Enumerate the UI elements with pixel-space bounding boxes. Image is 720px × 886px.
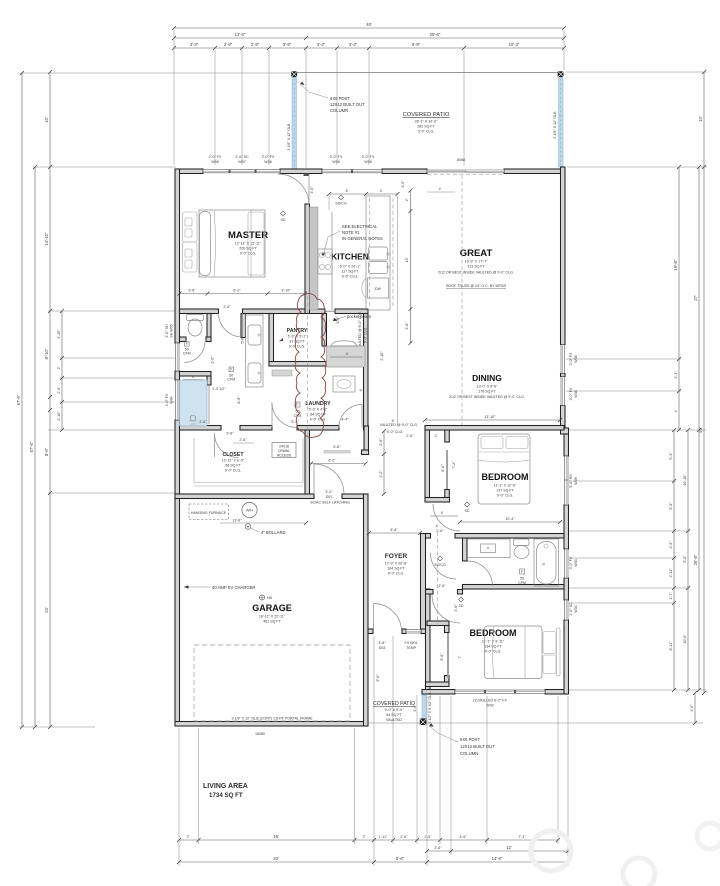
svg-text:2'-11": 2'-11" <box>669 568 673 578</box>
svg-text:3'-8": 3'-8" <box>378 641 386 645</box>
svg-text:3 1/8" X 12" GLB: 3 1/8" X 12" GLB <box>553 111 557 139</box>
svg-text:50: 50 <box>520 577 524 581</box>
svg-text:9'-6": 9'-6" <box>376 674 380 682</box>
svg-text:13'-6": 13'-6" <box>232 519 242 523</box>
svg-text:SH W05: SH W05 <box>170 324 174 337</box>
svg-text:VAULTED @ 9'-0" CLG.: VAULTED @ 9'-0" CLG. <box>380 423 418 427</box>
svg-text:D01: D01 <box>326 495 333 499</box>
svg-text:VAULTED @ 9'-0" CLG.: VAULTED @ 9'-0" CLG. <box>358 311 362 349</box>
svg-text:2': 2' <box>57 366 61 369</box>
svg-text:DINING: DINING <box>472 373 502 383</box>
svg-text:COLUMN: COLUMN <box>330 108 348 113</box>
svg-text:9'-0" CLG.: 9'-0" CLG. <box>485 650 502 654</box>
svg-text:7'-2": 7'-2" <box>452 461 456 469</box>
svg-text:2'-9": 2'-9" <box>224 42 233 47</box>
svg-text:3'-6": 3'-6" <box>336 316 340 324</box>
svg-text:4': 4' <box>439 187 442 191</box>
svg-text:GARAGE: GARAGE <box>252 603 292 613</box>
svg-text:GREAT: GREAT <box>460 248 493 259</box>
svg-text:W02: W02 <box>486 704 493 708</box>
svg-text:2'-0" SC: 2'-0" SC <box>569 602 573 616</box>
svg-text:5'-6": 5'-6" <box>333 445 341 449</box>
svg-text:10'-6": 10'-6" <box>683 634 687 644</box>
svg-text:VAULTED: VAULTED <box>386 718 402 722</box>
svg-text:3'-6": 3'-6" <box>690 704 694 712</box>
svg-text:10'-4": 10'-4" <box>505 517 515 521</box>
svg-text:W08: W08 <box>574 390 578 397</box>
svg-text:4': 4' <box>441 511 444 515</box>
svg-text:57'-6": 57'-6" <box>29 441 34 452</box>
svg-text:9'-0" CLG.: 9'-0" CLG. <box>225 469 242 473</box>
svg-text:6': 6' <box>346 189 349 193</box>
svg-text:COLUMN: COLUMN <box>460 751 478 756</box>
svg-text:2'-6": 2'-6" <box>239 438 247 442</box>
svg-text:176 SQ FT: 176 SQ FT <box>478 390 496 394</box>
svg-text:2'-6": 2'-6" <box>199 420 207 424</box>
svg-text:5'-0" X 9'-0": 5'-0" X 9'-0" <box>385 708 404 712</box>
svg-text:6'-6": 6'-6" <box>441 464 445 472</box>
svg-text:3'-0": 3'-0" <box>401 180 405 188</box>
svg-text:9'-0" CLG.: 9'-0" CLG. <box>387 430 404 434</box>
svg-text:6'-0" X 20'-1": 6'-0" X 20'-1" <box>340 265 361 269</box>
svg-text:FX W01: FX W01 <box>405 641 418 645</box>
svg-text:2': 2' <box>187 835 190 839</box>
svg-text:2'-6": 2'-6" <box>211 356 215 364</box>
svg-text:2'-0" SC: 2'-0" SC <box>235 155 249 159</box>
svg-text:2'-6": 2'-6" <box>406 434 414 438</box>
svg-text:54 SQ FT: 54 SQ FT <box>386 713 402 717</box>
svg-text:5'-3" X 4'-6": 5'-3" X 4'-6" <box>309 408 328 412</box>
svg-text:4'-9": 4'-9" <box>459 835 467 839</box>
svg-text:1734 SQ FT: 1734 SQ FT <box>209 792 243 799</box>
svg-text:4'-10": 4'-10" <box>57 329 61 339</box>
svg-text:14'-6": 14'-6" <box>492 856 503 861</box>
svg-text:CFM: CFM <box>227 378 235 382</box>
svg-text:LAUNDRY: LAUNDRY <box>305 401 331 407</box>
svg-text:10': 10' <box>405 257 409 262</box>
svg-text:3': 3' <box>380 189 383 193</box>
svg-text:6': 6' <box>392 419 395 423</box>
svg-text:40 AMP EV CHARGER: 40 AMP EV CHARGER <box>212 585 255 590</box>
svg-text:16': 16' <box>273 834 279 839</box>
svg-text:4'-4": 4'-4" <box>341 418 349 422</box>
svg-text:W03: W03 <box>574 605 578 612</box>
svg-text:24': 24' <box>44 607 49 613</box>
svg-text:2': 2' <box>435 434 438 438</box>
svg-text:5'-6": 5'-6" <box>396 856 405 861</box>
svg-text:3'-0" FX: 3'-0" FX <box>330 155 343 159</box>
svg-text:HANGING FURNACE: HANGING FURNACE <box>191 511 227 515</box>
svg-text:3'-8": 3'-8" <box>405 322 409 330</box>
svg-text:W04: W04 <box>170 396 174 403</box>
svg-text:9'-0" CLG.: 9'-0" CLG. <box>342 275 359 279</box>
svg-text:9'-0" CLG.: 9'-0" CLG. <box>289 345 306 349</box>
svg-text:5'-3" X 5'-1": 5'-3" X 5'-1" <box>288 335 307 339</box>
svg-text:COVERED PATIO: COVERED PATIO <box>403 112 450 118</box>
svg-text:SO/CO: SO/CO <box>434 563 446 567</box>
svg-text:ACCESS: ACCESS <box>277 454 292 458</box>
svg-text:2'-10": 2'-10" <box>57 411 61 421</box>
svg-text:16080: 16080 <box>255 732 265 736</box>
svg-text:6X6 POST: 6X6 POST <box>330 96 350 101</box>
svg-text:3'-6": 3'-6" <box>188 289 196 293</box>
svg-text:9'-0" CLG.: 9'-0" CLG. <box>310 418 327 422</box>
svg-text:200 SQ FT: 200 SQ FT <box>239 247 257 251</box>
svg-text:10': 10' <box>44 117 49 123</box>
svg-text:COVERED PATIO: COVERED PATIO <box>373 701 415 707</box>
svg-text:3'-6": 3'-6" <box>454 604 458 612</box>
svg-text:58 SQ FT: 58 SQ FT <box>225 464 241 468</box>
svg-text:134 SQ FT: 134 SQ FT <box>484 645 502 649</box>
svg-text:2'-5": 2'-5" <box>424 835 432 839</box>
svg-text:CRAWL: CRAWL <box>278 449 290 453</box>
svg-text:20': 20' <box>273 856 279 861</box>
svg-text:18'-11" X 22'-11": 18'-11" X 22'-11" <box>259 615 286 619</box>
svg-text:2'-0" FX: 2'-0" FX <box>209 155 222 159</box>
svg-text:2'-9 1/2": 2'-9 1/2" <box>212 387 226 391</box>
svg-text:137 SQ FT: 137 SQ FT <box>496 489 514 493</box>
svg-text:3'-0": 3'-0" <box>310 186 314 194</box>
svg-text:3'-3": 3'-3" <box>349 42 358 47</box>
svg-text:8068: 8068 <box>457 158 465 162</box>
svg-text:67'-6": 67'-6" <box>16 394 21 405</box>
svg-text:8'-6": 8'-6" <box>44 447 49 456</box>
svg-text:9'-0" CLG.: 9'-0" CLG. <box>418 130 435 134</box>
svg-text:W06: W06 <box>211 160 218 164</box>
svg-text:5'-3": 5'-3" <box>291 420 299 424</box>
svg-text:2': 2' <box>363 835 366 839</box>
svg-text:SD/CO: SD/CO <box>335 202 347 206</box>
svg-text:2'-9": 2'-9" <box>669 541 673 549</box>
svg-text:5'-6": 5'-6" <box>241 336 245 344</box>
svg-text:3'-6": 3'-6" <box>413 704 417 712</box>
svg-text:27': 27' <box>693 295 698 301</box>
svg-text:11'-1" X 9'-11": 11'-1" X 9'-11" <box>482 640 505 644</box>
svg-text:313 SQ FT: 313 SQ FT <box>467 265 485 269</box>
svg-text:SEE ELECTRICAL: SEE ELECTRICAL <box>342 224 378 229</box>
svg-text:4'-2": 4'-2" <box>379 470 383 478</box>
svg-text:DW: DW <box>375 287 382 291</box>
svg-text:3'-0" FX: 3'-0" FX <box>362 155 375 159</box>
svg-text:40': 40' <box>366 22 372 27</box>
svg-text:SD: SD <box>459 604 464 608</box>
svg-text:8'-11": 8'-11" <box>669 641 673 651</box>
svg-text:1'-11": 1'-11" <box>379 835 389 839</box>
svg-text:3'-0" SH: 3'-0" SH <box>165 324 169 338</box>
svg-text:3'-9": 3'-9" <box>283 42 292 47</box>
svg-text:2/12 OR BEST INSIDE VAULTED @: 2/12 OR BEST INSIDE VAULTED @ 9'-0" CLG. <box>438 271 514 275</box>
svg-text:117 SQ FT: 117 SQ FT <box>341 270 359 274</box>
svg-text:2'-6": 2'-6" <box>223 305 231 309</box>
svg-text:W09: W09 <box>574 477 578 484</box>
svg-text:SD: SD <box>281 218 286 222</box>
svg-text:2'-6": 2'-6" <box>434 846 442 850</box>
svg-text:CFM: CFM <box>518 581 526 585</box>
svg-text:W/H: W/H <box>246 509 253 513</box>
svg-text:3'-10": 3'-10" <box>281 289 291 293</box>
svg-text:5'-0" RS: 5'-0" RS <box>569 474 573 488</box>
svg-text:5'-8": 5'-8" <box>683 555 687 563</box>
svg-text:5'-3": 5'-3" <box>669 452 673 460</box>
svg-text:4" BOLLARD: 4" BOLLARD <box>261 530 286 535</box>
svg-text:7': 7' <box>458 655 462 658</box>
svg-text:6'-2": 6'-2" <box>328 459 336 463</box>
svg-text:12'-11" X 6'-5": 12'-11" X 6'-5" <box>222 459 245 463</box>
svg-text:26'-6": 26'-6" <box>430 32 441 37</box>
svg-text:2'-10": 2'-10" <box>380 351 384 361</box>
svg-text:12X12 BUILT OUT: 12X12 BUILT OUT <box>460 744 495 749</box>
svg-text:12X12 BUILT OUT: 12X12 BUILT OUT <box>330 102 365 107</box>
svg-text:13'-0" X 8'-6": 13'-0" X 8'-6" <box>477 385 498 389</box>
svg-text:CLOSET: CLOSET <box>222 452 244 458</box>
svg-text:13'-6": 13'-6" <box>235 32 246 37</box>
svg-text:NOTE #1: NOTE #1 <box>342 230 360 235</box>
svg-text:11'-1" X 12'-6": 11'-1" X 12'-6" <box>494 484 517 488</box>
svg-text:SD: SD <box>465 509 470 513</box>
svg-text:8'-10": 8'-10" <box>44 348 49 359</box>
svg-text:2': 2' <box>405 198 409 201</box>
svg-text:10'-3": 10'-3" <box>509 42 520 47</box>
svg-text:26'-8": 26'-8" <box>693 554 698 565</box>
svg-text:2'-6": 2'-6" <box>226 432 234 436</box>
svg-text:ROOF TRUSS @ 24" O.C. BY MFGR: ROOF TRUSS @ 24" O.C. BY MFGR <box>446 284 507 288</box>
svg-text:4': 4' <box>674 409 678 412</box>
svg-text:3 1/8" X 12" GLB: 3 1/8" X 12" GLB <box>287 123 291 151</box>
svg-text:W08: W08 <box>364 160 371 164</box>
svg-text:5'-3": 5'-3" <box>669 502 673 510</box>
svg-text:2'-6": 2'-6" <box>436 529 444 533</box>
svg-text:19'-8": 19'-8" <box>673 259 678 270</box>
svg-text:12'-11" X 13'-11": 12'-11" X 13'-11" <box>235 242 262 246</box>
svg-text:5'-6": 5'-6" <box>440 653 444 661</box>
svg-text:8'-6": 8'-6" <box>237 396 241 404</box>
svg-text:3'-3": 3'-3" <box>674 371 678 379</box>
svg-text:3 1/8" X 12" GLB (CONT) CS-PF: 3 1/8" X 12" GLB (CONT) CS-PF PORTAL FRA… <box>232 717 314 721</box>
svg-text:7'-3": 7'-3" <box>518 835 526 839</box>
svg-text:W07: W07 <box>238 160 245 164</box>
svg-text:31 SQ FT: 31 SQ FT <box>289 340 305 344</box>
svg-text:6X6 POST: 6X6 POST <box>460 737 480 742</box>
svg-text:12': 12' <box>506 845 512 850</box>
svg-text:4': 4' <box>436 524 439 528</box>
svg-text:28'-1" X 10'-0": 28'-1" X 10'-0" <box>415 120 438 124</box>
svg-text:461 SQ FT: 461 SQ FT <box>263 620 281 624</box>
svg-text:4'-3": 4'-3" <box>190 42 199 47</box>
svg-text:W03: W03 <box>574 559 578 566</box>
svg-text:9'-0" CLG.: 9'-0" CLG. <box>497 494 514 498</box>
svg-text:24X18: 24X18 <box>279 445 289 449</box>
svg-text:3'-0": 3'-0" <box>325 490 333 494</box>
svg-text:282 SQ FT: 282 SQ FT <box>417 125 435 129</box>
svg-text:6': 6' <box>359 388 363 391</box>
svg-text:LIVING AREA: LIVING AREA <box>203 783 248 790</box>
svg-text:2'-0" FX: 2'-0" FX <box>262 155 275 159</box>
svg-text:W06: W06 <box>264 160 271 164</box>
svg-text:3'-3": 3'-3" <box>317 42 326 47</box>
svg-text:14'-10": 14'-10" <box>44 232 49 246</box>
svg-text:2'-6": 2'-6" <box>400 835 408 839</box>
svg-text:10': 10' <box>698 116 703 122</box>
svg-text:10'-10": 10'-10" <box>683 474 687 486</box>
svg-text:CFM: CFM <box>183 352 191 356</box>
svg-text:16'-9" X 17'-7": 16'-9" X 17'-7" <box>465 260 488 264</box>
svg-text:IN GENERAL NOTES: IN GENERAL NOTES <box>342 236 383 241</box>
svg-text:2'-6": 2'-6" <box>57 386 61 394</box>
svg-text:SC/AC SELF LATCHING: SC/AC SELF LATCHING <box>310 501 350 505</box>
svg-text:2'-6": 2'-6" <box>438 584 446 588</box>
svg-text:4'-0" FX: 4'-0" FX <box>165 393 169 406</box>
svg-text:3': 3' <box>192 375 195 379</box>
svg-text:3'-0" FX: 3'-0" FX <box>569 352 573 365</box>
svg-text:TEMP: TEMP <box>406 646 417 650</box>
svg-text:D03: D03 <box>379 646 386 650</box>
svg-text:2/12 OR BEST INSIDE VAULTED @: 2/12 OR BEST INSIDE VAULTED @ 9'-0" CLG. <box>449 395 525 399</box>
svg-text:1'-7": 1'-7" <box>669 592 673 600</box>
svg-text:3'-0" FX: 3'-0" FX <box>569 387 573 400</box>
svg-text:2'-9": 2'-9" <box>251 42 260 47</box>
svg-text:2'-6": 2'-6" <box>379 438 383 446</box>
svg-text:KITCHEN: KITCHEN <box>331 252 369 262</box>
svg-text:W08: W08 <box>332 160 339 164</box>
svg-text:6'-2": 6'-2" <box>233 289 241 293</box>
svg-text:5 1/2" X 9 1/2" GLB: 5 1/2" X 9 1/2" GLB <box>428 692 432 724</box>
svg-text:5'-8": 5'-8" <box>390 528 398 532</box>
svg-text:FOYER: FOYER <box>385 553 408 560</box>
svg-text:17'-9" X 20'-8": 17'-9" X 20'-8" <box>385 562 408 566</box>
svg-text:(3) MULLED 6'-2" FX: (3) MULLED 6'-2" FX <box>473 699 507 703</box>
svg-text:164 SQ FT: 164 SQ FT <box>387 567 405 571</box>
svg-text:BEDROOM: BEDROOM <box>482 472 529 482</box>
svg-text:9'-0" CLG.: 9'-0" CLG. <box>388 572 405 576</box>
svg-text:9'-9": 9'-9" <box>412 42 421 47</box>
svg-text:3'-0" FX: 3'-0" FX <box>569 556 573 569</box>
svg-text:4': 4' <box>346 352 349 356</box>
svg-text:9'-0" CLG.: 9'-0" CLG. <box>364 327 368 344</box>
svg-text:W08: W08 <box>574 355 578 362</box>
svg-text:13'-10": 13'-10" <box>484 415 496 419</box>
svg-text:5': 5' <box>542 562 546 565</box>
svg-text:HD: HD <box>267 596 273 600</box>
